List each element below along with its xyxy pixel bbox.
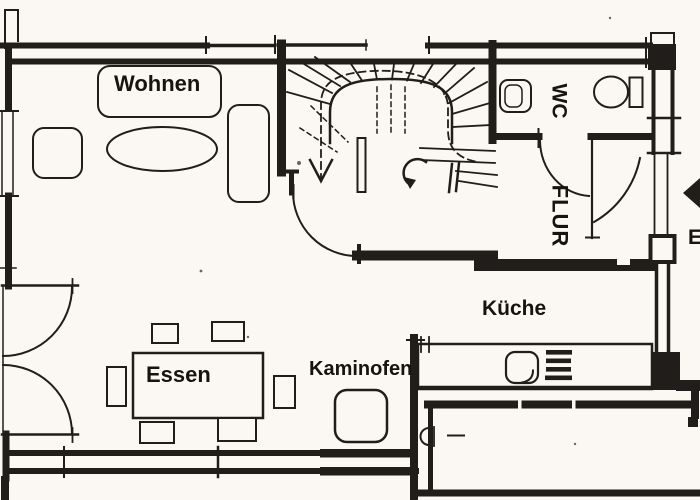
- entrance-label: E: [688, 226, 700, 249]
- stair-steps: [287, 57, 497, 187]
- entrance-arrow-icon: [683, 178, 700, 208]
- room-label-wohnen: Wohnen: [114, 71, 200, 96]
- stair-foot-door: [293, 185, 357, 256]
- sofa: [228, 105, 269, 202]
- wall-pillar: [651, 236, 675, 262]
- bottom-walls: [10, 447, 700, 493]
- french-doors-west: [2, 279, 78, 442]
- top-left-notch: [5, 10, 18, 48]
- kaminofen-stove: [335, 390, 387, 442]
- kitchen-sink: [506, 352, 538, 383]
- window-left: [2, 111, 13, 196]
- coffee-table: [107, 127, 217, 171]
- stair-cut-mark: [449, 164, 452, 192]
- room-label-essen: Essen: [146, 362, 211, 387]
- toilet-bowl: [594, 77, 628, 108]
- stair-spine: [358, 138, 366, 192]
- door-arc: [293, 192, 357, 256]
- entrance-door-arc: [594, 158, 640, 222]
- top-walls: [3, 10, 674, 67]
- room-labels: Wohnen Essen Küche Kaminofen WC FLUR: [114, 71, 573, 387]
- toilet-tank: [630, 78, 643, 108]
- room-label-flur: FLUR: [548, 185, 573, 248]
- left-wall: [0, 48, 18, 500]
- room-label-kaminofen: Kaminofen: [309, 358, 412, 380]
- staircase: [287, 57, 497, 192]
- chair: [140, 422, 174, 443]
- entrance-door: [594, 158, 640, 222]
- hall-kitchen-walls: [357, 246, 649, 265]
- chair: [152, 324, 178, 343]
- floor-plan: E: [0, 0, 700, 500]
- room-label-wc: WC: [548, 84, 571, 119]
- entrance-marker: E: [683, 178, 700, 249]
- chair: [212, 322, 244, 341]
- stair-cut-mark: [456, 163, 459, 191]
- stair-hidden-steps: [300, 85, 405, 152]
- wall-pillar: [650, 352, 680, 390]
- room-label-kueche: Küche: [482, 297, 546, 320]
- connection-symbol: [421, 428, 430, 445]
- chair: [218, 418, 256, 441]
- door-arc: [3, 287, 72, 356]
- floor-plan-drawing: E: [0, 0, 700, 500]
- stair-curl-arrowhead: [404, 177, 416, 189]
- kitchen: [407, 337, 692, 498]
- armchair: [33, 128, 82, 178]
- chair: [274, 376, 295, 408]
- door-arc: [3, 365, 72, 434]
- chair: [107, 367, 126, 406]
